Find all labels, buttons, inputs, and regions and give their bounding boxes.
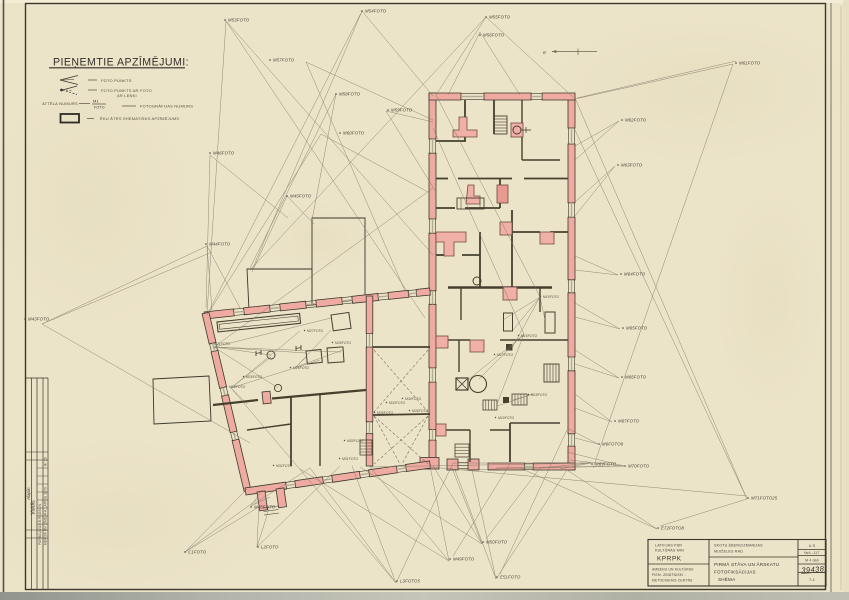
svg-text:M21FOTO: M21FOTO [214,342,231,346]
svg-text:Valdis: Valdis [31,500,37,515]
svg-text:M 4 dab: M 4 dab [805,559,819,563]
svg-text:M28FOTO: M28FOTO [335,341,352,345]
svg-text:M54FOTO: M54FOTO [365,9,387,14]
svg-text:M61FOTO: M61FOTO [739,61,761,66]
svg-text:M56FOTO: M56FOTO [483,33,505,38]
svg-text:M64FOTO: M64FOTO [624,272,646,277]
svg-text:M31FOTO: M31FOTO [342,457,359,461]
svg-text:M33FOTO: M33FOTO [389,401,406,405]
svg-text:M17FOTO: M17FOTO [497,353,514,357]
svg-text:SHĒMA: SHĒMA [718,576,736,582]
svg-text:E72FOTO8: E72FOTO8 [661,526,685,531]
svg-text:M71FOTO25: M71FOTO25 [751,496,778,501]
svg-text:L3FOTO5: L3FOTO5 [400,579,421,584]
svg-text:AMBEŅU UN KULTŪRAS: AMBEŅU UN KULTŪRAS [652,568,694,572]
svg-text:M35FOTO: M35FOTO [377,411,394,415]
svg-text:MUIŽELES RAD.: MUIŽELES RAD. [714,549,744,554]
svg-text:FOTOGRĀFIJAS NUMURS: FOTOGRĀFIJAS NUMURS [140,104,193,109]
svg-text:ATTĒLA NUMURS: ATTĒLA NUMURS [42,101,78,106]
svg-text:M59FOTO: M59FOTO [391,108,413,113]
svg-text:PIRMĀ STĀVA UN ĀRSKATU: PIRMĀ STĀVA UN ĀRSKATU [714,561,779,567]
svg-text:M49FOTO: M49FOTO [453,557,475,562]
svg-text:KPRPK: KPRPK [657,556,682,563]
svg-text:M19FOTO: M19FOTO [498,416,515,420]
svg-text:ĒKU ĀTRS SHEMATISKS APZĪMĒ: ĒKU ĀTRS SHEMATISKS APZĪMĒJUMS [100,116,179,121]
svg-text:KULTŪRAS MIN: KULTŪRAS MIN [655,549,684,553]
svg-text:M65FOTO: M65FOTO [626,326,648,331]
svg-text:M1: M1 [93,99,100,104]
svg-text:FOTOFIKSĀCIJAS: FOTOFIKSĀCIJAS [714,569,756,575]
svg-text:M67FOTO: M67FOTO [618,419,640,424]
svg-text:M26FOTO: M26FOTO [293,366,310,370]
svg-text:7-1: 7-1 [809,578,815,582]
svg-text:№6.-117: №6.-117 [804,551,819,555]
svg-text:M45FOTO: M45FOTO [290,194,312,199]
svg-text:M63FOTO: M63FOTO [621,163,643,168]
svg-text:M25FOTO: M25FOTO [246,375,263,379]
svg-text:M60FOTO: M60FOTO [343,131,365,136]
svg-text:M43FOTO: M43FOTO [28,317,50,322]
svg-text:L2FOTO: L2FOTO [261,545,279,550]
svg-text:Nr 20: Nr 20 [44,457,48,466]
svg-text:M62FOTO: M62FOTO [625,118,647,123]
svg-text:SKOTU ĒBERĢIZMANIJAS: SKOTU ĒBERĢIZMANIJAS [714,544,763,548]
svg-text:M66FOTO: M66FOTO [625,375,647,380]
svg-text:M34FOTO: M34FOTO [405,397,422,401]
svg-text:MERIJA UN ZIMEJA A.LAPINS 19: MERIJA UN ZIMEJA A.LAPINS 1979 [44,487,48,545]
svg-text:FOTO: FOTO [94,106,105,110]
svg-text:M6FOTO8: M6FOTO8 [602,442,624,447]
svg-text:M32FOTO: M32FOTO [276,464,293,468]
svg-text:M36FOTO: M36FOTO [412,409,429,413]
svg-text:AR LEŅĶI: AR LEŅĶI [117,93,137,98]
svg-text:Alapin: Alapin [26,487,31,501]
svg-text:M15FOTO: M15FOTO [543,295,560,299]
svg-text:M44FOTO: M44FOTO [209,242,231,247]
svg-text:M16FOTO: M16FOTO [521,334,538,338]
svg-text:M48FOTO: M48FOTO [254,505,276,510]
svg-text:M46FOTO: M46FOTO [213,151,235,156]
svg-text:M30FOTO: M30FOTO [347,439,364,443]
svg-text:M53FOTO: M53FOTO [228,18,250,23]
svg-text:C1FOTO: C1FOTO [188,550,207,555]
svg-text:M50FOTO: M50FOTO [486,540,508,545]
svg-text:PARBAUDIJA B.RAGELIS: PARBAUDIJA B.RAGELIS [38,504,42,545]
svg-text:LATVIJAS PSR: LATVIJAS PSR [655,544,682,548]
svg-text:M27FOTO: M27FOTO [307,329,324,333]
svg-text:PIEM. ZINĀTNISKI -: PIEM. ZINĀTNISKI - [652,573,686,577]
svg-text:M57FOTO: M57FOTO [273,58,295,63]
svg-text:M69FOTO: M69FOTO [595,462,617,467]
svg-text:M29FOTO: M29FOTO [229,385,246,389]
svg-text:M58FOTO: M58FOTO [339,92,361,97]
svg-text:METODISKAIS CENTRS: METODISKAIS CENTRS [652,579,693,583]
svg-text:M18FOTO: M18FOTO [531,393,548,397]
svg-text:e: e [543,50,546,56]
svg-text:U.S: U.S [809,544,816,548]
svg-text:M55FOTO: M55FOTO [489,15,511,20]
svg-text:E51FOTO: E51FOTO [500,575,521,580]
svg-text:PIEŅEMTIE APZĪMĒJUMI:: PIEŅEMTIE APZĪMĒJUMI: [53,57,189,69]
svg-text:M70FOTO: M70FOTO [628,464,650,469]
svg-text:FOTO PUNKTS: FOTO PUNKTS [101,78,132,83]
